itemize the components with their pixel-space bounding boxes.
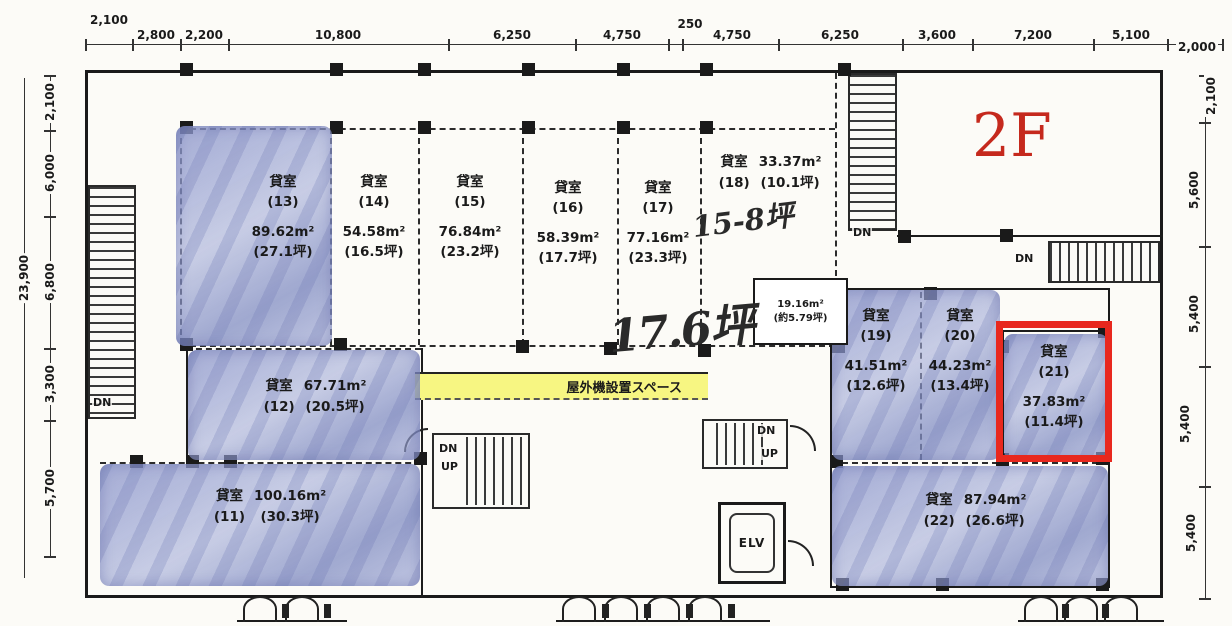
door-arc [1024, 596, 1058, 622]
room-15-area: 76.84m² [420, 222, 520, 242]
dimension-ticks-top [85, 39, 87, 51]
dim-top-9: 3,600 [916, 28, 958, 42]
room-20-area: 44.23m² [910, 356, 1010, 376]
room-15-number: (15) [420, 192, 520, 212]
dimension-ticks-left [44, 75, 56, 77]
dim-top-3: 10,800 [313, 28, 363, 42]
room-15-label: 貸室 (15) 76.84m² (23.2坪) [420, 172, 520, 262]
dim-left-total: 23,900 [17, 253, 31, 303]
dim-top-8: 6,250 [819, 28, 861, 42]
floor-label: 2F [972, 106, 1052, 166]
small-room-area: 19.16m² [777, 298, 823, 312]
room-17-name: 貸室 [608, 178, 708, 198]
room-12-number: (12) [264, 397, 295, 417]
dim-top-2: 2,200 [183, 28, 225, 42]
stairs-west [88, 185, 136, 419]
room-18-tsubo: (10.1坪) [759, 173, 822, 193]
elevator-shaft: ELV [718, 502, 786, 584]
outdoor-unit-space-label: 屋外機設置スペース [567, 377, 682, 396]
dim-left-3: 3,300 [43, 363, 57, 405]
dim-right-3: 5,400 [1178, 403, 1192, 445]
room-22-area: 87.94m² [964, 490, 1027, 510]
room-18-number: (18) [719, 173, 750, 193]
room-16-tsubo: (17.7坪) [518, 248, 618, 268]
dim-top-4: 6,250 [491, 28, 533, 42]
outdoor-unit-space: 屋外機設置スペース [415, 372, 708, 400]
room-11-name: 貸室 [214, 486, 245, 506]
room-17-tsubo: (23.3坪) [608, 248, 708, 268]
dimension-line-right [1205, 75, 1206, 598]
stairs-northeast [848, 73, 897, 231]
stairs-center-east-up-label: UP [760, 447, 779, 460]
room-13-name: 貸室 [233, 172, 333, 192]
dim-right-2: 5,400 [1187, 293, 1201, 335]
door-arc [688, 596, 722, 622]
room-20-name: 貸室 [910, 306, 1010, 326]
room-12-tsubo: (20.5坪) [304, 397, 367, 417]
room-15-tsubo: (23.2坪) [420, 242, 520, 262]
stairs-center-west-dn-label: DN [438, 442, 458, 455]
room-18-area: 33.37m² [759, 152, 822, 172]
dim-top-10: 7,200 [1012, 28, 1054, 42]
stairs-west-dn-label: DN [92, 396, 112, 409]
stairs-northeast-dn-label: DN [852, 226, 872, 239]
dim-left-1: 6,000 [43, 152, 57, 194]
dimension-line-left-total [24, 78, 25, 578]
stairs-east [1048, 241, 1160, 283]
room-22-number: (22) [924, 511, 955, 531]
room-18-name: 貸室 [719, 152, 750, 172]
room-13-tsubo: (27.1坪) [233, 242, 333, 262]
floor-plan-2f: 2,100 2,800 2,200 10,800 6,250 4,750 250… [0, 0, 1232, 626]
door-arc [1064, 596, 1098, 622]
room-21-tsubo: (11.4坪) [1004, 412, 1104, 432]
dim-top-12: 2,000 [1176, 40, 1218, 54]
room-16-label: 貸室 (16) 58.39m² (17.7坪) [518, 178, 618, 268]
dim-right-1: 5,600 [1187, 169, 1201, 211]
room-13-area: 89.62m² [233, 222, 333, 242]
stairs-east-dn-label: DN [1014, 252, 1034, 265]
room-11-number: (11) [214, 507, 245, 527]
room-21-number: (21) [1004, 362, 1104, 382]
room-21-label: 貸室 (21) 37.83m² (11.4坪) [1004, 342, 1104, 432]
room-12-label: 貸室 67.71m² (12) (20.5坪) [235, 376, 395, 418]
room-22-label: 貸室 87.94m² (22) (26.6坪) [890, 490, 1060, 532]
room-11-tsubo: (30.3坪) [254, 507, 326, 527]
dim-left-0: 2,100 [43, 81, 57, 123]
dim-left-4: 5,700 [43, 467, 57, 509]
room-11-area: 100.16m² [254, 486, 326, 506]
facade-posts [282, 604, 289, 618]
dim-right-4: 5,400 [1184, 512, 1198, 554]
room-22-tsubo: (26.6坪) [964, 511, 1027, 531]
room-16-area: 58.39m² [518, 228, 618, 248]
stairs-center-west-up-label: UP [440, 460, 459, 473]
dim-right-0: 2,100 [1204, 75, 1218, 117]
wall-room22-top [832, 462, 1108, 464]
dim-top-6: 250 [675, 17, 704, 31]
door-arc [1104, 596, 1138, 622]
room-20-number: (20) [910, 326, 1010, 346]
dim-top-1: 2,800 [135, 28, 177, 42]
dimension-line-top [85, 44, 1222, 45]
room-21-name: 貸室 [1004, 342, 1104, 362]
dim-left-2: 6,800 [43, 261, 57, 303]
room-13-number: (13) [233, 192, 333, 212]
column-squares [180, 63, 193, 76]
door-arc [243, 596, 277, 622]
dim-top-5: 4,750 [601, 28, 643, 42]
room-14-label: 貸室 (14) 54.58m² (16.5坪) [324, 172, 424, 262]
room-12-area: 67.71m² [304, 376, 367, 396]
room-20-tsubo: (13.4坪) [910, 376, 1010, 396]
wall-upper-right-corridor [897, 235, 1163, 237]
room-14-tsubo: (16.5坪) [324, 242, 424, 262]
dim-top-7: 4,750 [711, 28, 753, 42]
room-12-name: 貸室 [264, 376, 295, 396]
room-22-name: 貸室 [924, 490, 955, 510]
room-16-name: 貸室 [518, 178, 618, 198]
stairs-center-west-hatch [466, 437, 526, 505]
room-18-label: 貸室 33.37m² (18) (10.1坪) [700, 152, 840, 194]
elevator-label: ELV [739, 536, 765, 550]
room-14-name: 貸室 [324, 172, 424, 192]
room-13-label: 貸室 (13) 89.62m² (27.1坪) [233, 172, 333, 262]
door-arc [604, 596, 638, 622]
small-room-tsubo: (約5.79坪) [774, 312, 828, 326]
room-16-number: (16) [518, 198, 618, 218]
stairs-center-east-dn-label: DN [756, 424, 776, 437]
door-arc [646, 596, 680, 622]
door-arc [562, 596, 596, 622]
room-14-number: (14) [324, 192, 424, 212]
room-20-label: 貸室 (20) 44.23m² (13.4坪) [910, 306, 1010, 396]
dim-top-0: 2,100 [88, 13, 130, 27]
room-14-area: 54.58m² [324, 222, 424, 242]
room-15-name: 貸室 [420, 172, 520, 192]
room-11-label: 貸室 100.16m² (11) (30.3坪) [185, 486, 355, 528]
handwritten-note-center: 17.6坪 [605, 288, 755, 365]
door-arc [285, 596, 319, 622]
dim-top-11: 5,100 [1110, 28, 1152, 42]
room-21-area: 37.83m² [1004, 392, 1104, 412]
